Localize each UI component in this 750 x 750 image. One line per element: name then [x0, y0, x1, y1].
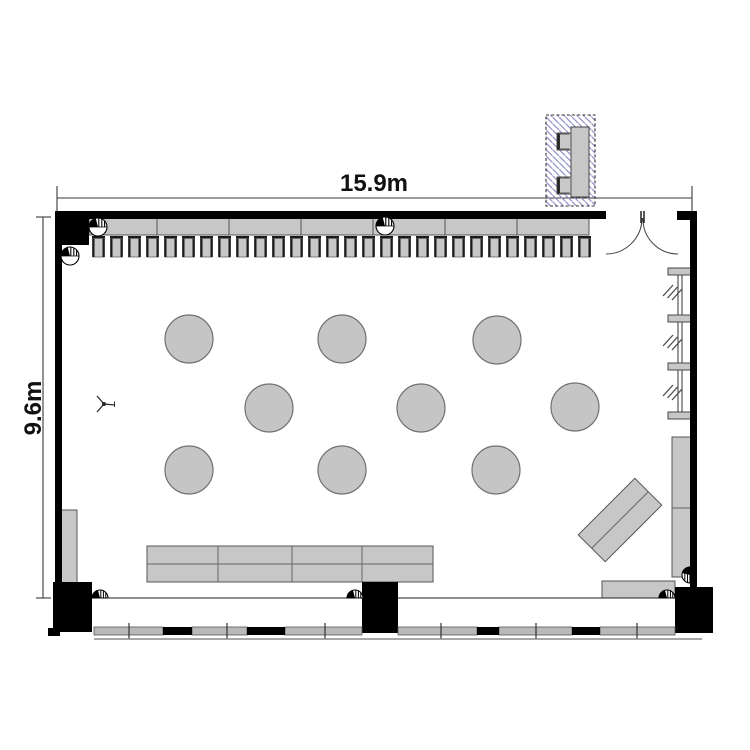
column-top-left	[55, 211, 89, 245]
counter-stool-28	[578, 237, 591, 257]
column-bottom-right	[675, 587, 713, 633]
pier-bottom-middle	[362, 582, 398, 633]
counter-stool-18	[398, 237, 411, 257]
spandrel-1	[163, 627, 192, 635]
door-swing-left	[606, 218, 642, 254]
counter-stool-12	[290, 237, 303, 257]
counter-stool-23	[488, 237, 501, 257]
wall-return-bottom-left	[48, 628, 60, 636]
hanger-marks-1	[663, 285, 682, 300]
column-symbol-bottom-left	[92, 590, 108, 598]
counter-stool-3	[128, 237, 141, 257]
dimension-width-label: 15.9m	[340, 170, 408, 197]
coat-rail-bracket-2	[668, 315, 691, 322]
counter-stool-27	[560, 237, 573, 257]
counter-stool-14	[326, 237, 339, 257]
round-table-9	[472, 446, 520, 494]
counter-stool-24	[506, 237, 519, 257]
round-table-2	[318, 315, 366, 363]
round-table-6	[551, 383, 599, 431]
counter-stool-10	[254, 237, 267, 257]
counter-stool-11	[272, 237, 285, 257]
counter-stool-9	[236, 237, 249, 257]
dimension-height-label: 9.6m	[20, 381, 47, 436]
counter-stool-19	[416, 237, 429, 257]
door-swing-right	[643, 218, 678, 254]
counter-stool-2	[110, 237, 123, 257]
spandrel-4	[572, 627, 600, 635]
floor-plan-canvas: 15.9m9.6m	[0, 0, 750, 750]
counter-stool-20	[434, 237, 447, 257]
glazing-panel-4	[398, 627, 477, 635]
wall-left	[55, 211, 62, 583]
coat-rail-bracket-4	[668, 412, 691, 419]
counter-stool-5	[164, 237, 177, 257]
column-symbol-counter-left	[89, 218, 107, 236]
column-symbol-bottom-mid	[347, 590, 363, 598]
counter-stool-6	[182, 237, 195, 257]
counter-stool-16	[362, 237, 375, 257]
column-symbol-counter-mid	[376, 217, 394, 235]
hanger-marks-2	[663, 335, 682, 350]
glazing-panel-2	[192, 627, 247, 635]
round-table-1	[165, 315, 213, 363]
wall-top	[55, 211, 606, 219]
service-chair-2	[557, 177, 571, 194]
spandrel-2	[247, 627, 285, 635]
counter-stool-1	[92, 237, 105, 257]
counter-stool-4	[146, 237, 159, 257]
wall-counter	[89, 218, 589, 235]
counter-stool-22	[470, 237, 483, 257]
counter-stool-25	[524, 237, 537, 257]
ceiling-fan-icon	[97, 396, 115, 412]
round-table-4	[245, 384, 293, 432]
counter-stool-13	[308, 237, 321, 257]
service-chair-1	[557, 133, 571, 150]
counter-stool-26	[542, 237, 555, 257]
counter-stool-17	[380, 237, 393, 257]
counter-stool-8	[218, 237, 231, 257]
round-table-7	[165, 446, 213, 494]
counter-stool-7	[200, 237, 213, 257]
left-wall-cabinet	[60, 510, 77, 583]
glazing-panel-3	[285, 627, 362, 635]
counter-stool-15	[344, 237, 357, 257]
hanger-marks-3	[663, 385, 682, 400]
wall-right	[690, 211, 697, 587]
column-bottom-left	[53, 582, 92, 632]
column-symbol-wall-left	[61, 247, 79, 265]
coat-rail-bracket-3	[668, 363, 691, 370]
service-desk	[571, 127, 589, 197]
round-table-5	[397, 384, 445, 432]
right-wall-bench	[672, 437, 691, 577]
floor-plan-svg: 15.9m9.6m	[0, 0, 750, 750]
round-table-3	[473, 316, 521, 364]
spandrel-3	[477, 627, 499, 635]
coat-rail-bracket-1	[668, 268, 691, 275]
counter-stool-21	[452, 237, 465, 257]
round-table-8	[318, 446, 366, 494]
